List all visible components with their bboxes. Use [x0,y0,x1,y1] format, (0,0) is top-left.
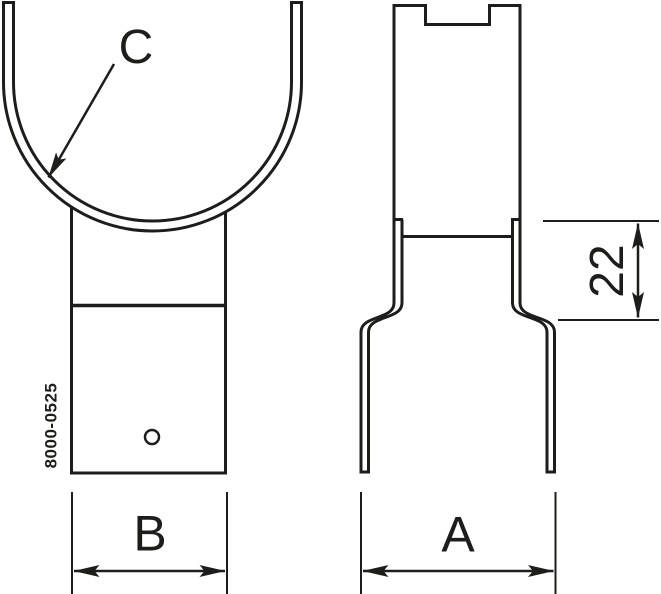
side-view: 22 A [360,6,660,594]
dim-22-label: 22 [581,244,634,297]
front-view: C 8000-0525 B [4,3,302,594]
label-c-leader-arrow [49,64,115,178]
dim-b-label: B [133,506,166,562]
part-number-label: 8000-0525 [41,383,60,469]
leg-right [511,218,556,472]
pipe-hanger-drawing: C 8000-0525 B 22 A [0,0,661,594]
label-c: C [119,21,154,74]
dim-a: A [361,492,556,594]
dim-22: 22 [543,221,659,320]
technical-drawing-canvas: C 8000-0525 B 22 A [0,0,661,594]
dim-a-label: A [441,507,475,563]
dim-b: B [72,492,227,594]
leg-left [360,218,404,472]
mounting-hole [145,430,159,444]
side-body-outline [394,6,520,222]
